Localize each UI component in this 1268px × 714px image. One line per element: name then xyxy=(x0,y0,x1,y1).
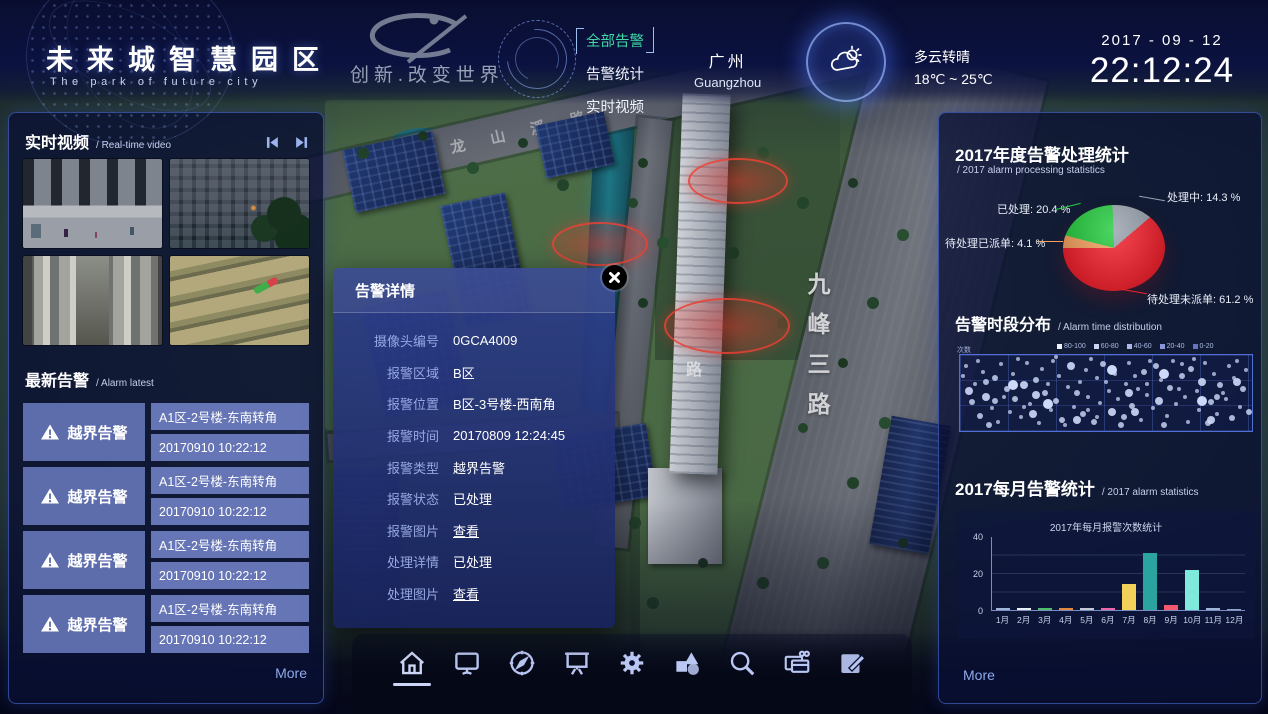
field-label: 报警时间 xyxy=(333,426,439,445)
projection-screen-icon xyxy=(561,648,593,678)
warning-icon xyxy=(40,551,60,569)
close-icon xyxy=(602,265,627,290)
field-label: 摄像头编号 xyxy=(333,331,439,350)
bar-chart-bars: 1月2月3月4月5月6月7月8月9月10月11月12月 xyxy=(992,537,1245,610)
weather-ring xyxy=(806,22,886,102)
time-display: 22:12:24 xyxy=(1064,51,1260,91)
skip-next-icon[interactable] xyxy=(294,135,309,150)
dock-monitor-button[interactable] xyxy=(450,648,484,688)
warning-icon xyxy=(40,487,60,505)
video-thumbnail-4[interactable] xyxy=(170,256,309,345)
legend-entry: 0-20 xyxy=(1200,343,1214,350)
scatter-section-title: 告警时段分布 xyxy=(955,311,1051,335)
weather-text: 多云转晴 18℃ ~ 25℃ xyxy=(914,46,993,90)
pie-section-title: 2017年度告警处理统计 xyxy=(955,141,1129,166)
alarm-section-subtitle: / Alarm latest xyxy=(96,378,154,389)
field-label: 报警位置 xyxy=(333,394,439,413)
skip-prev-icon[interactable] xyxy=(265,135,280,150)
warning-icon xyxy=(40,615,60,633)
warning-icon xyxy=(40,423,60,441)
alarm-type-label: 越界告警 xyxy=(67,486,127,507)
header: 未来城智慧园区 The park of future city 创新.改变世界 … xyxy=(0,0,1268,104)
video-thumbnail-2[interactable] xyxy=(170,159,309,248)
pie-label-pending-undispatched: 待处理未派单: 61.2 % xyxy=(1147,291,1253,307)
swirl-ring-decoration xyxy=(498,20,576,98)
alarm-list-item[interactable]: 越界告警 A1区-2号楼-东南转角20170910 10:22:12 xyxy=(23,467,309,525)
dock-edit-button[interactable] xyxy=(835,648,869,688)
alarm-time: 20170910 10:22:12 xyxy=(151,498,309,525)
alarm-time: 20170910 10:22:12 xyxy=(151,562,309,589)
alarm-image-link[interactable]: 查看 xyxy=(453,521,479,540)
field-label: 报警图片 xyxy=(333,521,439,540)
pie-chart xyxy=(1062,203,1167,293)
alarm-type-value: 越界告警 xyxy=(453,458,505,477)
camera-id-value: 0GCA4009 xyxy=(453,333,517,348)
alarm-status-value: 已处理 xyxy=(453,489,492,508)
popup-body: 摄像头编号0GCA4009 报警区域B区 报警位置B区-3号楼-西南角 报警时间… xyxy=(333,313,615,609)
video-thumbnail-1[interactable] xyxy=(23,159,162,248)
alarm-list-item[interactable]: 越界告警 A1区-2号楼-东南转角20170910 10:22:12 xyxy=(23,595,309,653)
alarm-type-label: 越界告警 xyxy=(67,550,127,571)
weather-temp: 18℃ ~ 25℃ xyxy=(914,68,993,90)
alarm-time-value: 20170809 12:24:45 xyxy=(453,428,565,443)
date-display: 2017 - 09 - 12 xyxy=(1064,32,1260,49)
dock-cards-button[interactable] xyxy=(780,648,814,688)
alarm-type-label: 越界告警 xyxy=(67,614,127,635)
alarm-location: A1区-2号楼-东南转角 xyxy=(151,595,309,622)
alarm-time: 20170910 10:22:12 xyxy=(151,626,309,653)
alarm-type-label: 越界告警 xyxy=(67,422,127,443)
alarm-position-value: B区-3号楼-西南角 xyxy=(453,394,556,413)
stats-more-link[interactable]: More xyxy=(963,667,995,683)
city-block: 广州 Guangzhou xyxy=(694,48,761,90)
scatter-legend: 80-100 60-80 40-60 20-40 0-20 xyxy=(1057,343,1214,350)
left-panel: 实时视频 / Real-time video 最新告警 / Alarm late… xyxy=(8,112,324,704)
dock-settings-button[interactable] xyxy=(615,648,649,688)
popup-close-button[interactable] xyxy=(602,265,627,290)
bar-section-title: 2017每月告警统计 xyxy=(955,475,1095,500)
handle-image-link[interactable]: 查看 xyxy=(453,584,479,603)
field-label: 处理详情 xyxy=(333,552,439,571)
pie-label-processing: 处理中: 14.3 % xyxy=(1167,189,1240,205)
video-grid xyxy=(23,159,309,345)
pie-section-subtitle: / 2017 alarm processing statistics xyxy=(957,165,1105,176)
alarm-location: A1区-2号楼-东南转角 xyxy=(151,531,309,558)
bar-chart-title: 2017年每月报警次数统计 xyxy=(957,519,1255,534)
page-subtitle: The park of future city xyxy=(50,76,262,88)
cards-icon xyxy=(781,648,813,678)
alarm-location: A1区-2号楼-东南转角 xyxy=(151,403,309,430)
legend-entry: 60-80 xyxy=(1101,343,1119,350)
alarm-location: A1区-2号楼-东南转角 xyxy=(151,467,309,494)
video-thumbnail-3[interactable] xyxy=(23,256,162,345)
header-nav: 全部告警 告警统计 实时视频 xyxy=(576,28,654,119)
scatter-plot xyxy=(959,354,1253,432)
dock-screen-button[interactable] xyxy=(560,648,594,688)
edit-icon xyxy=(836,648,868,678)
bar-section-subtitle: / 2017 alarm statistics xyxy=(1102,487,1199,498)
compass-icon xyxy=(506,648,538,678)
bar-y-axis: 02040 xyxy=(963,537,987,611)
field-label: 处理图片 xyxy=(333,584,439,603)
dock-compass-button[interactable] xyxy=(505,648,539,688)
company-slogan: 创新.改变世界 xyxy=(350,60,504,87)
alarm-list-item[interactable]: 越界告警 A1区-2号楼-东南转角20170910 10:22:12 xyxy=(23,403,309,461)
scatter-section-subtitle: / Alarm time distribution xyxy=(1058,322,1162,333)
dock-home-button[interactable] xyxy=(395,648,429,688)
datetime-block: 2017 - 09 - 12 22:12:24 xyxy=(1064,32,1260,91)
alarm-list-item[interactable]: 越界告警 A1区-2号楼-东南转角20170910 10:22:12 xyxy=(23,531,309,589)
alarm-section-title: 最新告警 xyxy=(25,367,89,391)
field-label: 报警类型 xyxy=(333,458,439,477)
gear-icon xyxy=(616,648,648,678)
legend-entry: 80-100 xyxy=(1064,343,1086,350)
right-panel: 2017年度告警处理统计 / 2017 alarm processing sta… xyxy=(938,112,1262,704)
alarm-more-link[interactable]: More xyxy=(275,665,307,681)
nav-alarm-stats[interactable]: 告警统计 xyxy=(576,61,654,86)
weather-icon xyxy=(826,42,866,82)
field-label: 报警区域 xyxy=(333,363,439,382)
bottom-dock xyxy=(352,634,912,714)
shapes-icon xyxy=(671,648,703,678)
weather-condition: 多云转晴 xyxy=(914,46,993,68)
handle-detail-value: 已处理 xyxy=(453,552,492,571)
dashboard: 龙山溪路 九峰三路 路 未来城智慧园区 The park of future c… xyxy=(0,0,1268,714)
nav-all-alarms[interactable]: 全部告警 xyxy=(576,28,654,53)
dock-search-button[interactable] xyxy=(725,648,759,688)
legend-entry: 40-60 xyxy=(1134,343,1152,350)
page-title: 未来城智慧园区 xyxy=(46,38,333,77)
alarm-time: 20170910 10:22:12 xyxy=(151,434,309,461)
home-icon xyxy=(396,648,428,678)
dock-shapes-button[interactable] xyxy=(670,648,704,688)
alarm-zone-value: B区 xyxy=(453,363,475,382)
popup-title: 告警详情 xyxy=(333,268,615,313)
pie-label-pending-dispatched: 待处理已派单: 4.1 % xyxy=(945,235,1045,251)
legend-entry: 20-40 xyxy=(1167,343,1185,350)
alarm-detail-popup: 告警详情 摄像头编号0GCA4009 报警区域B区 报警位置B区-3号楼-西南角… xyxy=(333,268,615,628)
nav-realtime-video[interactable]: 实时视频 xyxy=(576,94,654,119)
city-name: 广州 xyxy=(694,48,761,72)
city-name-en: Guangzhou xyxy=(694,75,761,90)
search-icon xyxy=(726,648,758,678)
bar-chart: 2017年每月报警次数统计 02040 1月2月3月4月5月6月7月8月9月10… xyxy=(957,511,1255,639)
monitor-icon xyxy=(451,648,483,678)
bar-plot-area: 1月2月3月4月5月6月7月8月9月10月11月12月 xyxy=(991,537,1245,611)
alarm-list: 越界告警 A1区-2号楼-东南转角20170910 10:22:12 越界告警 … xyxy=(23,403,309,653)
field-label: 报警状态 xyxy=(333,489,439,508)
